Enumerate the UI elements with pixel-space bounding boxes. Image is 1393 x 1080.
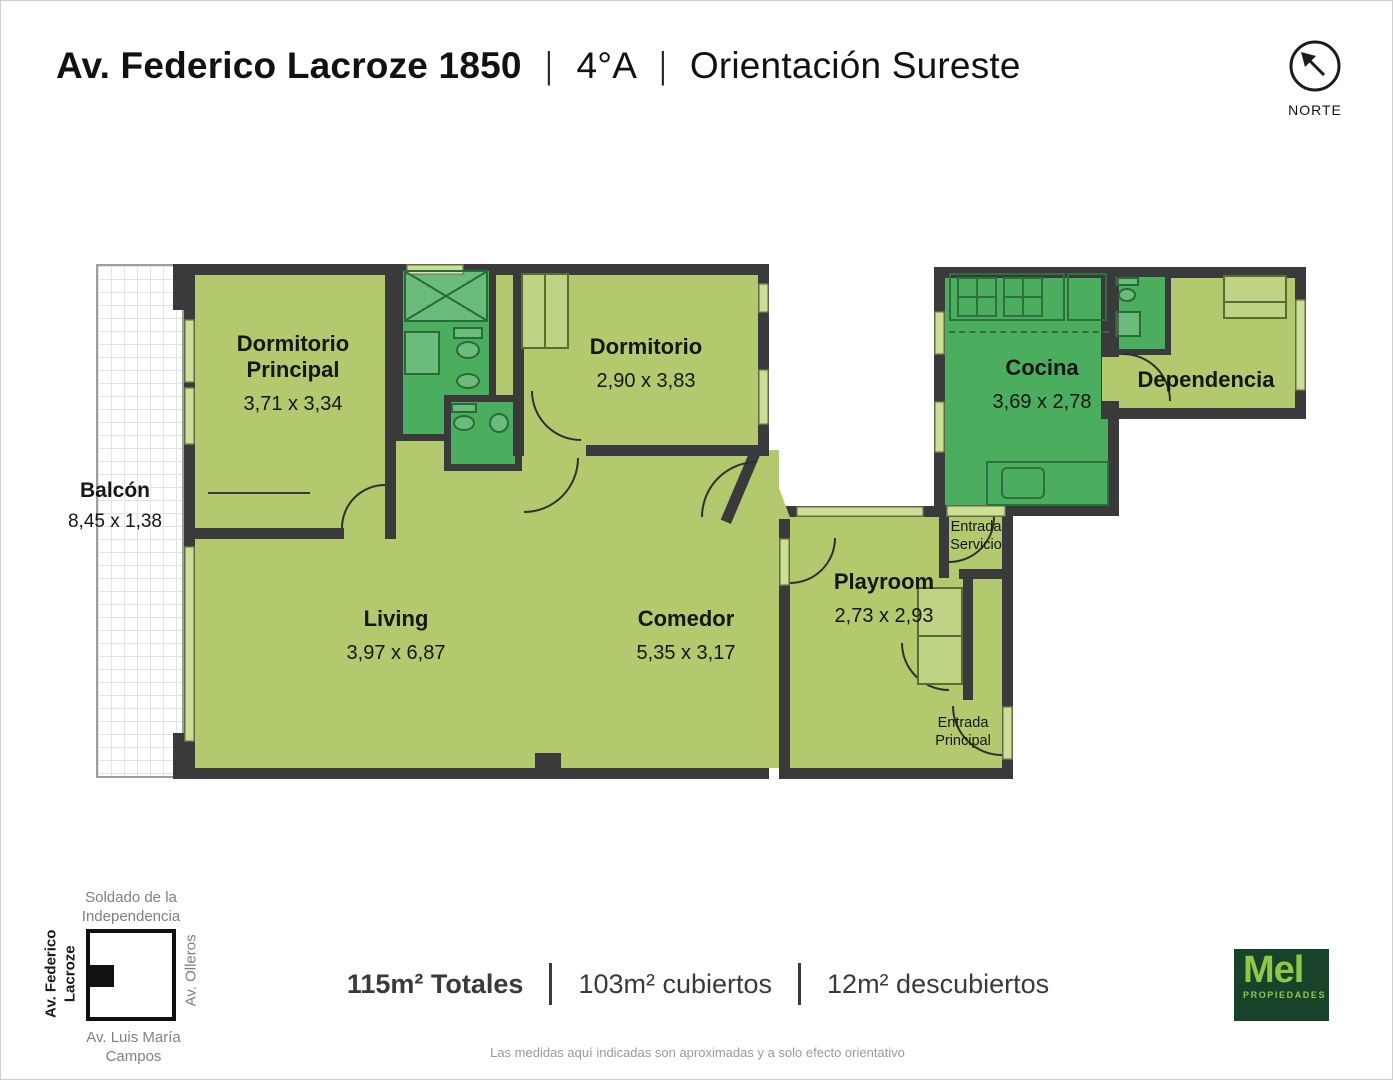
bathroom-fixture [1115,311,1141,337]
room-name: Cocina [962,355,1122,381]
logo-brand: Mel [1243,951,1329,989]
wall [963,569,973,700]
room-name: Comedor [606,606,766,632]
wall [184,528,344,539]
room-dims: 3,97 x 6,87 [316,642,476,665]
north-arrow-icon [1288,80,1342,97]
room-label-comedor: Comedor 5,35 x 3,17 [606,606,766,665]
kitchen-fixture [1003,277,1043,317]
floorplan-page: Av. Federico Lacroze 1850 | 4°A | Orient… [0,0,1393,1080]
logo-tagline: PROPIEDADES [1243,990,1329,1000]
area-summary: 115m² Totales 103m² cubiertos 12m² descu… [298,959,1098,1009]
room-name: Dependencia [1121,367,1291,393]
floor-patch [769,450,779,768]
room-dims: 3,69 x 2,78 [962,391,1122,414]
total-area: 115m² Totales [347,969,524,1000]
room-label-dormitorio: Dormitorio 2,90 x 3,83 [566,334,726,393]
bathroom-fixture [453,415,475,431]
room-label-dependencia: Dependencia [1121,367,1291,393]
covered-area: 103m² cubiertos [578,969,772,1000]
room-dims: 2,90 x 3,83 [566,370,726,393]
window [758,369,769,425]
title-separator: | [659,45,666,87]
room-name: Living [316,606,476,632]
room-name: Playroom [804,569,964,595]
room-dims: 3,71 x 3,34 [213,393,373,416]
wall [1108,401,1119,516]
closet-divider [544,273,546,349]
window [758,283,769,313]
bathroom-fixture [1115,277,1139,286]
window [934,311,945,355]
map-street-right: Av. Olleros [183,925,202,1015]
counter-dash-line [949,331,1109,333]
kitchen-fixture [1001,467,1045,499]
window [1295,299,1306,391]
room-label-cocina: Cocina 3,69 x 2,78 [962,355,1122,414]
bathroom-fixture [451,403,477,413]
room-label-living: Living 3,97 x 6,87 [316,606,476,665]
summary-divider [798,963,801,1005]
building-location-marker [86,965,114,987]
agency-logo: Mel PROPIEDADES [1234,949,1329,1021]
wall [535,753,561,779]
window [934,401,945,453]
room-label-balcon: Balcón 8,45 x 1,38 [56,479,174,533]
bathroom-fixture [1118,288,1136,302]
title-separator: | [546,45,553,87]
window [796,506,924,517]
north-indicator: NORTE [1285,39,1345,118]
room-dims: 5,35 x 3,17 [606,642,766,665]
bathroom-fixture [404,331,440,375]
room-dims: 2,73 x 2,93 [804,605,964,628]
north-label: NORTE [1285,102,1345,118]
uncovered-area: 12m² descubiertos [827,969,1049,1000]
bathroom-fixture [404,270,488,322]
window [184,319,195,383]
closet-divider [1225,301,1285,303]
kitchen-fixture [1067,273,1107,321]
title-orientation: Orientación Sureste [690,45,1021,86]
wall [173,733,184,779]
room-label-entrada-principal: Entrada Principal [919,714,1007,750]
room-name: Dormitorio [566,334,726,360]
window [184,387,195,445]
room-label-entrada-servicio: Entrada Servicio [939,518,1013,554]
bathroom-fixture [453,327,483,339]
room-name: Dormitorio Principal [213,331,373,383]
wall-detail-line [208,492,310,494]
closet [1223,275,1287,319]
title-unit: 4°A [576,45,635,86]
window [184,546,195,742]
room-dims: 8,45 x 1,38 [56,511,174,533]
room-name: Balcón [56,479,174,504]
room-label-dormitorio-principal: Dormitorio Principal 3,71 x 3,34 [213,331,373,416]
kitchen-fixture [957,277,997,317]
bathroom-fixture [456,341,480,359]
map-street-left: Av. Federico Lacroze [42,919,80,1029]
disclaimer-text: Las medidas aquí indicadas son aproximad… [1,1045,1393,1060]
closet-divider [917,635,963,637]
title-address: Av. Federico Lacroze 1850 [56,45,522,86]
bathroom-fixture [489,413,509,433]
wall [385,264,396,539]
wall [173,264,184,310]
summary-divider [549,963,552,1005]
room-label-playroom: Playroom 2,73 x 2,93 [804,569,964,628]
bathroom-fixture [456,373,480,389]
wall [586,445,769,456]
page-title: Av. Federico Lacroze 1850 | 4°A | Orient… [56,45,1021,87]
window [946,505,1006,517]
window [779,538,790,586]
